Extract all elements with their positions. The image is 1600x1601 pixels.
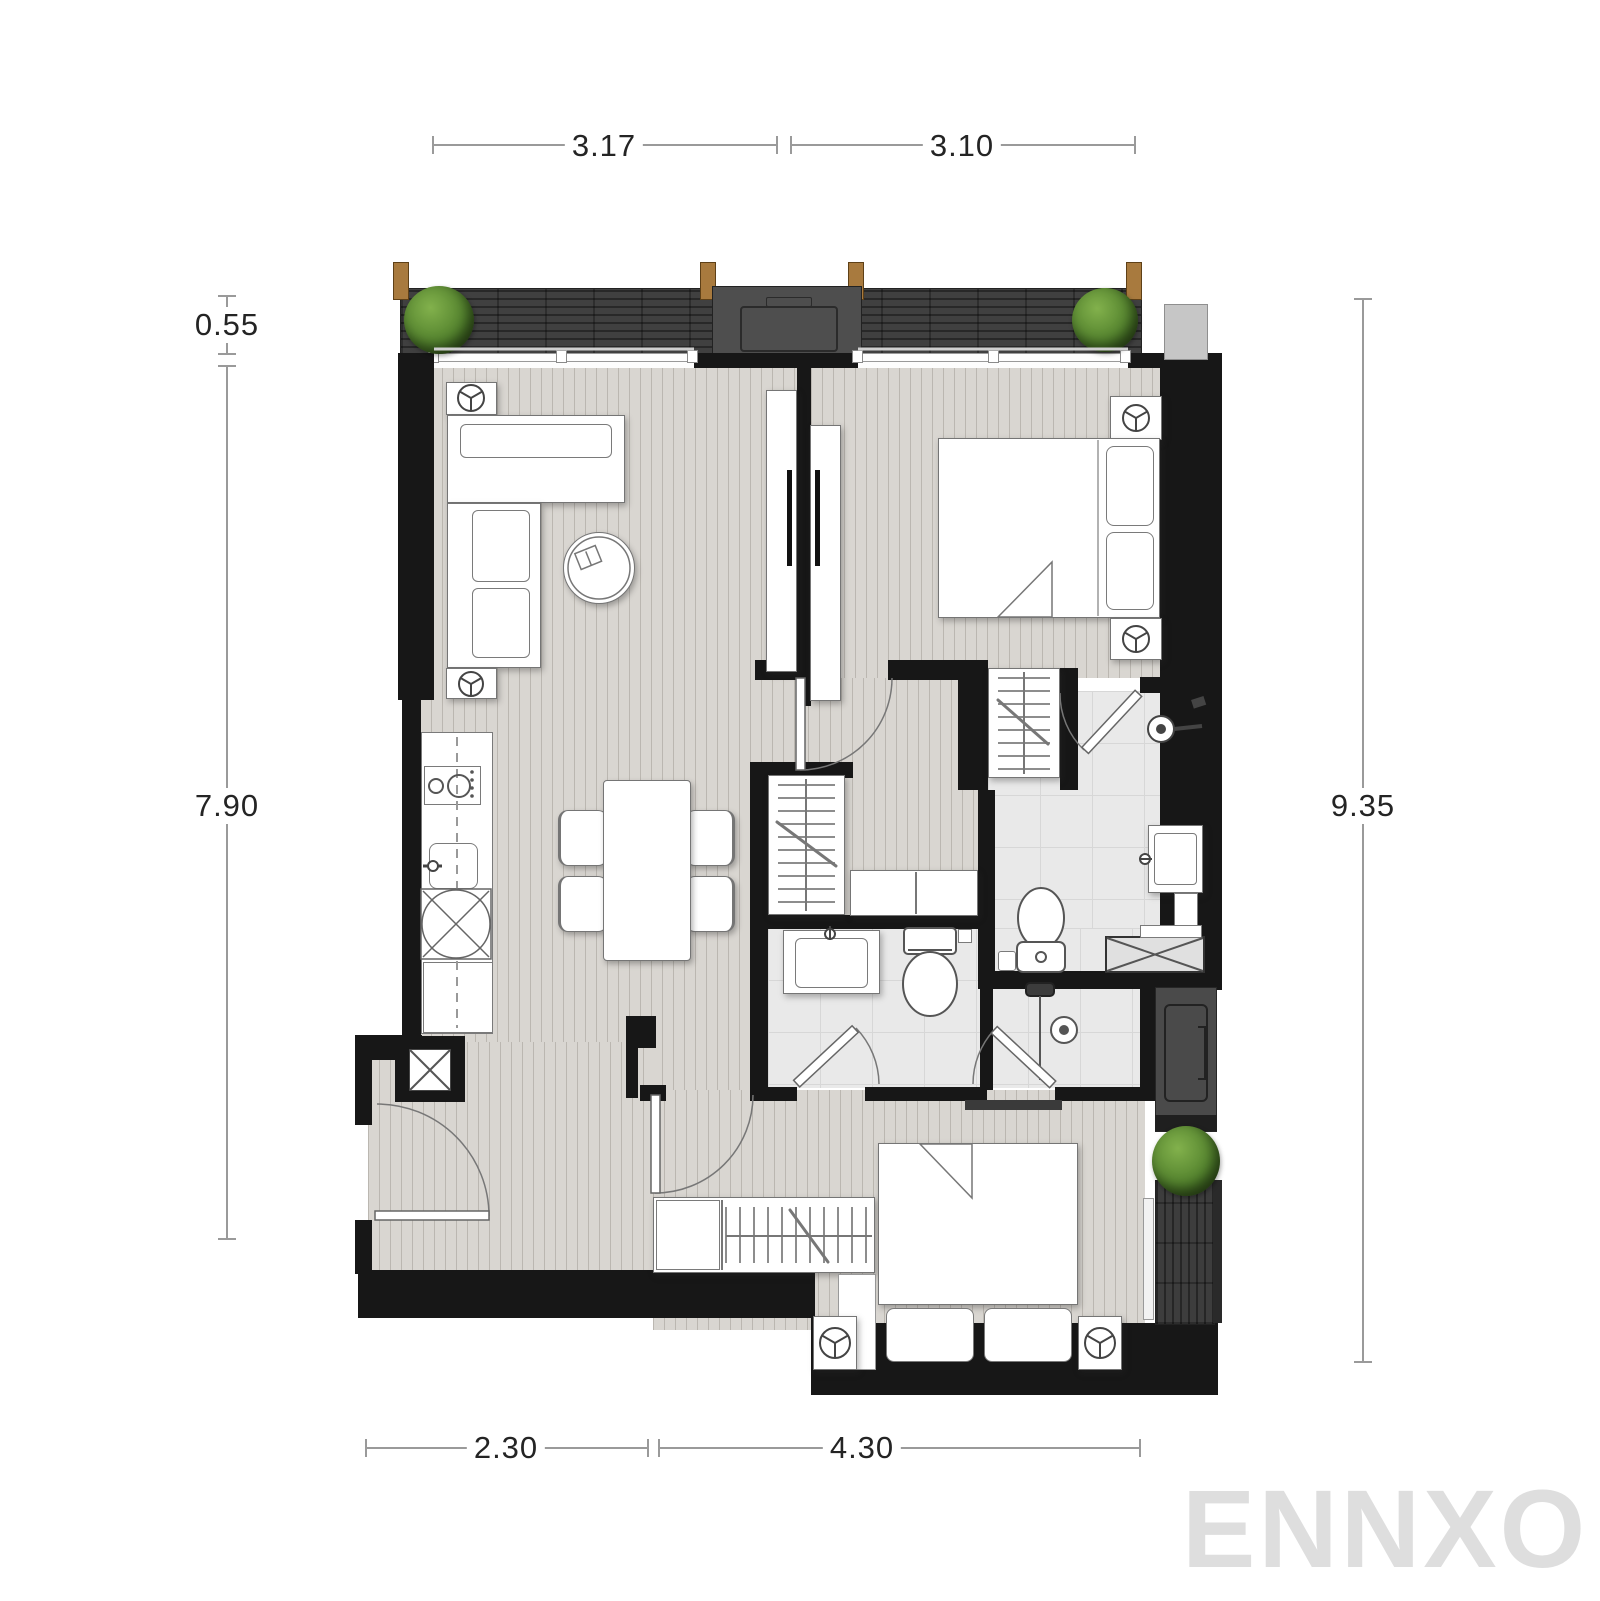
dim-top-2-label: 3.10: [923, 128, 1001, 164]
nightstand-bed2-left: [813, 1316, 857, 1370]
sofa-cushion-1: [472, 510, 530, 582]
wood-post-1: [393, 262, 409, 300]
dim-top-1-tick-l: [432, 136, 434, 154]
window-joint-6: [1120, 350, 1131, 363]
dim-left-1-tick-t: [218, 295, 236, 297]
dining-chair-tl: [558, 810, 608, 866]
plant-ac-ledge: [1152, 1126, 1220, 1196]
foyer-shaft-inner: [409, 1049, 451, 1091]
dim-right-line: [1362, 298, 1364, 1363]
ac-unit-balcony-body: [740, 306, 838, 352]
vanity-bathroom2-basin: [795, 938, 868, 988]
wall-foyer-left-lower: [355, 1220, 372, 1274]
dim-bottom-2-tick-r: [1139, 1439, 1141, 1457]
bathroom1-tall-cabinet: [1174, 893, 1198, 927]
dim-bottom-2-label: 4.30: [823, 1430, 901, 1466]
wall-foyer-bottom: [358, 1270, 815, 1318]
bathroom2-flush-plate: [958, 929, 972, 943]
dim-right-label: 9.35: [1324, 788, 1402, 824]
bedroom2-tv-console: [965, 1100, 1062, 1110]
dim-left-2-tick-t: [218, 365, 236, 367]
corridor-cabinet: [850, 870, 978, 916]
wall-wardrobe1-left: [958, 660, 988, 790]
wall-foyer-left-upper: [355, 1035, 372, 1125]
ac-ledge-grating: [1155, 1180, 1215, 1325]
wall-sliding-rail: [797, 358, 811, 706]
shaft2-shelf: [1140, 925, 1202, 938]
nightstand-bed2-right: [1078, 1316, 1122, 1370]
dining-chair-bl: [558, 876, 608, 932]
bed2-pillow-2: [984, 1308, 1072, 1362]
dim-top-2-tick-l: [790, 136, 792, 154]
wardrobe-bedroom2-hangers: [720, 1202, 870, 1268]
side-table-1: [446, 382, 497, 415]
sofa-chaise-cushion: [460, 424, 612, 458]
wall-wardrobe1-right: [1060, 668, 1078, 790]
wall-bath2-bottom-mid: [865, 1087, 987, 1101]
wardrobe-bedroom1: [988, 668, 1060, 778]
dim-top-1-label: 3.17: [565, 128, 643, 164]
plant-balcony-left: [404, 286, 474, 354]
dim-top-2-tick-r: [1134, 136, 1136, 154]
wall-bedroom2-door-stub: [640, 1085, 666, 1101]
wardrobe-bedroom1-hangers: [993, 673, 1055, 773]
floor-plan-canvas: 3.17 3.10 0.55 7.90 9.35 2.30 4.30: [0, 0, 1600, 1601]
wall-hall-stub-a: [626, 1016, 656, 1048]
dim-bottom-1-tick-l: [365, 1439, 367, 1457]
kitchen-sink: [429, 843, 478, 889]
dim-left-2-label: 7.90: [188, 788, 266, 824]
sliding-panel-2-handle: [815, 470, 820, 566]
plant-balcony-right: [1072, 288, 1138, 352]
dim-bottom-1-tick-r: [647, 1439, 649, 1457]
wall-bathroom1-top-right: [1140, 677, 1222, 693]
dim-bottom-2-tick-l: [658, 1439, 660, 1457]
ac-unit-balcony-vent: [766, 297, 812, 307]
dining-chair-tr: [685, 810, 735, 866]
dim-left-2-tick-b: [218, 1238, 236, 1240]
wall-kitchen-left: [402, 700, 421, 1042]
kitchen-base-cabinet: [423, 962, 493, 1033]
bed2-mattress: [878, 1143, 1078, 1305]
structural-column-box: [1164, 304, 1208, 360]
wall-bath2-bottom-left: [750, 1087, 797, 1101]
bathroom1-paper-holder: [998, 951, 1016, 971]
bed1-pillow-1: [1106, 446, 1154, 526]
dining-chair-br: [685, 876, 735, 932]
wall-hall-stub-b: [626, 1048, 638, 1098]
window-joint-4: [852, 350, 863, 363]
dim-left-1-label: 0.55: [188, 307, 266, 343]
dining-table: [603, 780, 691, 961]
dim-right-tick-t: [1354, 298, 1372, 300]
coffee-table: [563, 532, 635, 604]
bed1-pillow-2: [1106, 532, 1154, 610]
wall-living-left: [398, 353, 434, 700]
sliding-panel-1: [766, 390, 797, 672]
ac-ledge-rail: [1143, 1198, 1154, 1320]
wall-bath2-bottom-right: [1055, 1087, 1157, 1101]
window-joint-3: [687, 350, 698, 363]
cooktop: [424, 766, 481, 805]
watermark-logo: ENNXO: [1182, 1466, 1588, 1593]
wall-bath-divider: [980, 915, 993, 1090]
vanity-bathroom1-basin: [1154, 833, 1197, 885]
side-table-2: [446, 668, 497, 699]
sofa-cushion-2: [472, 588, 530, 658]
ac-condenser-tab: [1198, 1026, 1206, 1080]
window-joint-2: [556, 350, 567, 363]
sliding-panel-1-handle: [787, 470, 792, 566]
bed2-pillow-1: [886, 1308, 974, 1362]
dim-left-1-tick-b: [218, 353, 236, 355]
nightstand-bed1-top: [1110, 396, 1162, 440]
window-joint-5: [988, 350, 999, 363]
wardrobe-bedroom2-cabinet: [656, 1200, 720, 1270]
dim-top-1-tick-r: [776, 136, 778, 154]
wall-bathroom2-top: [750, 915, 980, 929]
wood-post-4: [1126, 262, 1142, 300]
nightstand-bed1-bottom: [1110, 618, 1162, 660]
dim-right-tick-b: [1354, 1361, 1372, 1363]
ac-ledge-edge: [1213, 1180, 1222, 1323]
wardrobe-corridor-hangers: [773, 780, 840, 910]
dim-bottom-1-label: 2.30: [467, 1430, 545, 1466]
service-shaft-2: [1105, 936, 1205, 973]
wall-wardrobe2-left: [750, 765, 768, 1100]
wardrobe-corridor: [768, 775, 845, 915]
